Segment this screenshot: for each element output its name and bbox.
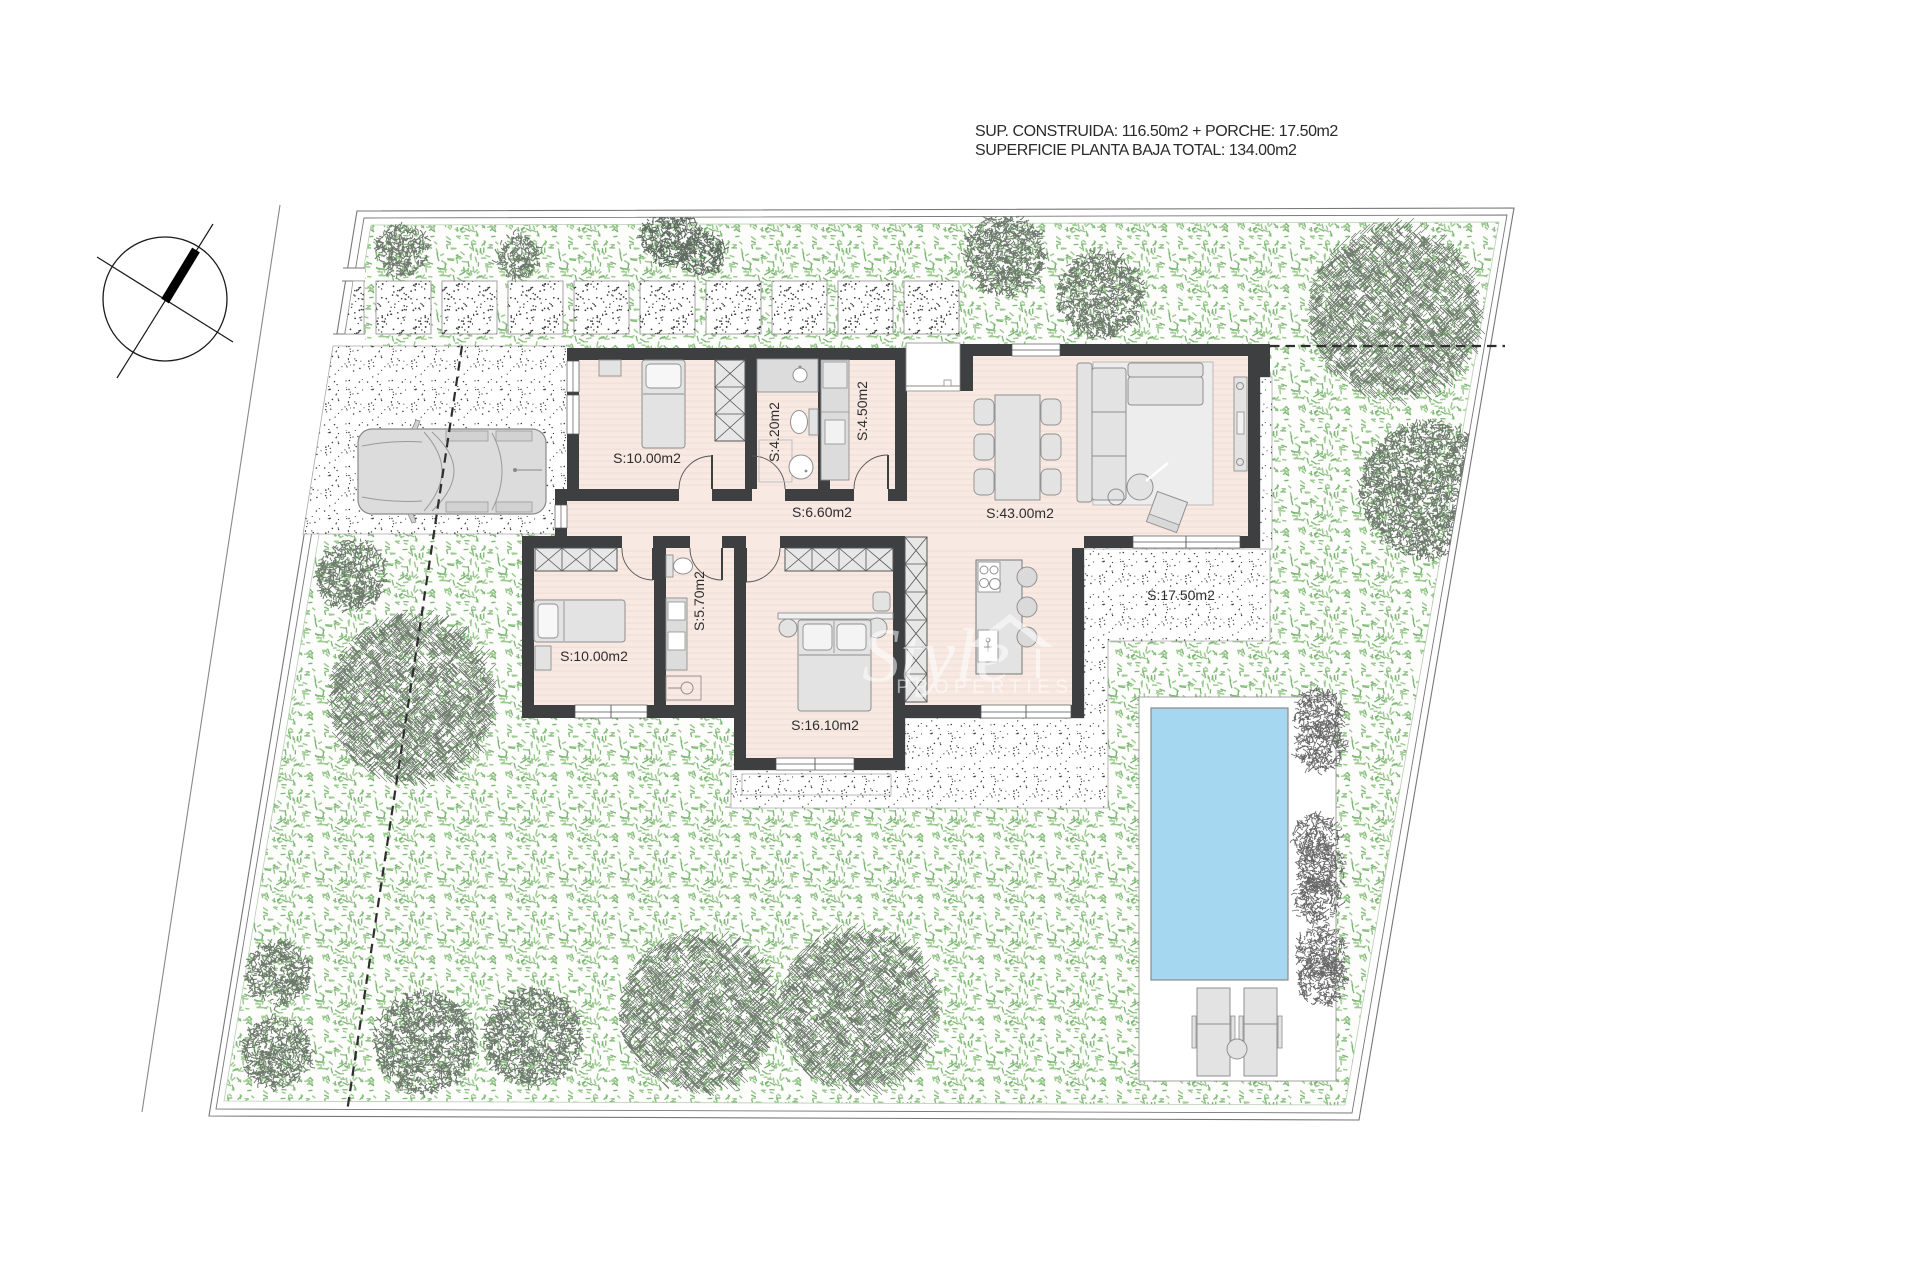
svg-text:S:10.00m2: S:10.00m2	[613, 450, 681, 466]
svg-text:S:4.20m2: S:4.20m2	[766, 402, 782, 462]
svg-text:S:4.50m2: S:4.50m2	[854, 381, 870, 441]
svg-text:S:5.70m2: S:5.70m2	[691, 571, 707, 631]
svg-text:S:6.60m2: S:6.60m2	[792, 504, 852, 520]
svg-text:S:10.00m2: S:10.00m2	[560, 648, 628, 664]
svg-text:S:17.50m2: S:17.50m2	[1147, 587, 1215, 603]
svg-text:S:16.10m2: S:16.10m2	[791, 717, 859, 733]
svg-text:SUPERFICIE PLANTA BAJA TOTAL:: SUPERFICIE PLANTA BAJA TOTAL: 134.00m2	[975, 142, 1297, 159]
svg-text:SUP. CONSTRUIDA: 116.50m2 + PO: SUP. CONSTRUIDA: 116.50m2 + PORCHE: 17.5…	[975, 123, 1338, 140]
svg-text:S:43.00m2: S:43.00m2	[986, 505, 1054, 521]
svg-text:PROPERTIES: PROPERTIES	[896, 677, 1073, 698]
